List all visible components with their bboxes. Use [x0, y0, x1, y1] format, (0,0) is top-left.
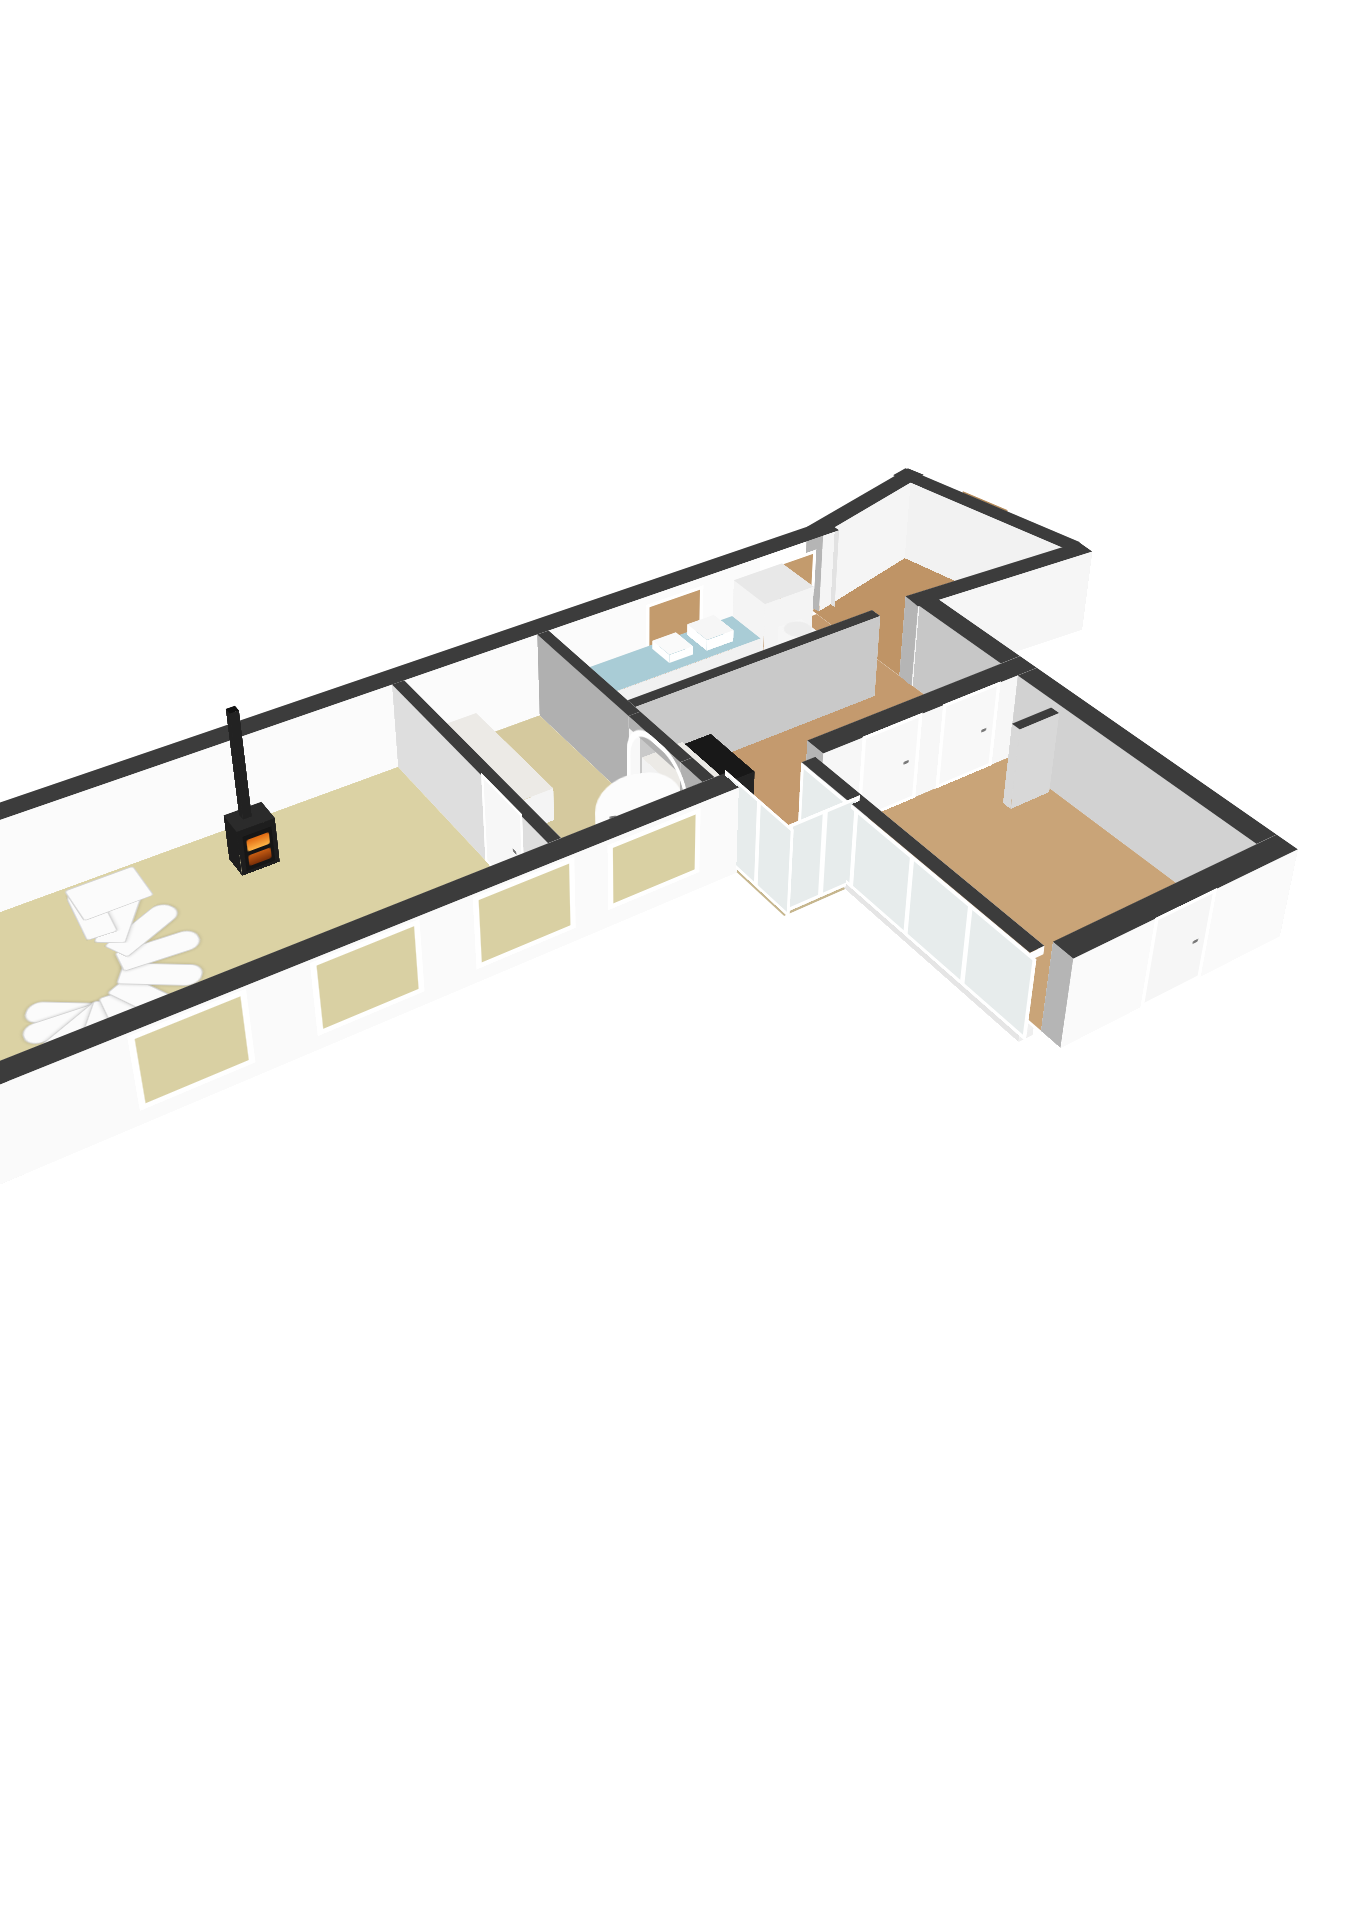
wc-glazing-south-mullion-0: [817, 813, 827, 896]
door-wing-se-handle: [1192, 939, 1198, 945]
wing-glazing-sw-mullion-0: [849, 811, 858, 886]
wing-glazing-sw-mullion-2: [960, 907, 972, 984]
floorplan-3d-stage: [0, 0, 1358, 1920]
wing-glazing-sw-mullion-1: [903, 858, 913, 934]
wc-glazing-west-mullion-0: [754, 801, 761, 885]
door-living-divider-handle: [513, 849, 517, 856]
door-wing-1-handle: [903, 760, 909, 765]
door-wing-2-handle: [980, 728, 986, 733]
